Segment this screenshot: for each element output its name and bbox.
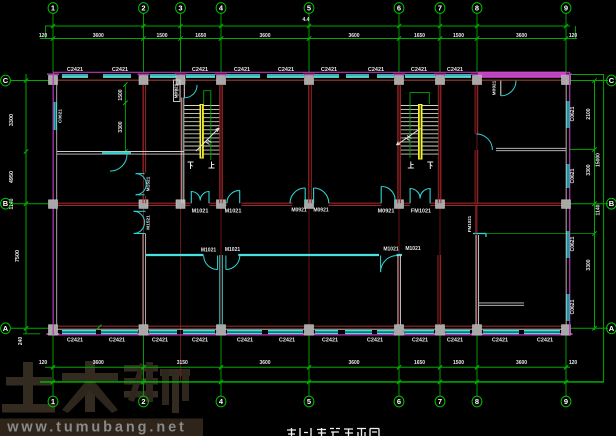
svg-text:9: 9	[564, 4, 568, 13]
svg-text:7: 7	[438, 397, 442, 406]
svg-text:1: 1	[51, 4, 55, 13]
svg-text:C2421: C2421	[321, 67, 337, 73]
svg-text:C2421: C2421	[278, 67, 294, 73]
svg-text:FM1021: FM1021	[411, 209, 431, 215]
svg-text:C0621: C0621	[570, 299, 576, 314]
svg-text:3300: 3300	[9, 114, 15, 126]
svg-text:2: 2	[141, 4, 145, 13]
svg-text:M0921: M0921	[174, 83, 180, 98]
svg-text:C2421: C2421	[234, 67, 250, 73]
svg-text:C2421: C2421	[492, 338, 508, 344]
svg-text:M0921: M0921	[492, 80, 498, 95]
svg-text:A: A	[609, 324, 615, 333]
svg-text:C2421: C2421	[322, 338, 338, 344]
svg-text:120: 120	[569, 360, 578, 366]
svg-text:www.tumubang.net: www.tumubang.net	[6, 420, 187, 436]
svg-text:6: 6	[397, 4, 401, 13]
svg-text:C: C	[609, 76, 615, 85]
svg-text:1650: 1650	[195, 33, 206, 39]
svg-text:3600: 3600	[348, 33, 359, 39]
svg-text:B: B	[609, 199, 615, 208]
svg-text:M1521: M1521	[146, 215, 152, 230]
svg-text:C2421: C2421	[447, 67, 463, 73]
svg-text:C2421: C2421	[67, 338, 83, 344]
svg-text:C2421: C2421	[109, 338, 125, 344]
svg-text:C2421: C2421	[112, 67, 128, 73]
svg-text:15000: 15000	[596, 153, 602, 167]
svg-text:C2421: C2421	[367, 338, 383, 344]
svg-text:1: 1	[51, 397, 55, 406]
svg-text:3150: 3150	[177, 360, 188, 366]
svg-text:C2421: C2421	[447, 338, 463, 344]
svg-text:1500: 1500	[118, 89, 124, 100]
svg-text:C2421: C2421	[192, 67, 208, 73]
svg-text:2: 2	[141, 397, 145, 406]
svg-text:M0921: M0921	[313, 208, 329, 214]
svg-text:4.4: 4.4	[303, 17, 310, 23]
svg-text:3600: 3600	[516, 33, 527, 39]
svg-text:9: 9	[564, 397, 568, 406]
svg-text:M1021: M1021	[201, 248, 217, 254]
svg-text:M0921: M0921	[291, 208, 307, 214]
svg-text:3300: 3300	[118, 121, 124, 132]
svg-text:C2421: C2421	[152, 338, 168, 344]
svg-text:3300: 3300	[586, 259, 592, 270]
svg-text:FM1021: FM1021	[467, 215, 472, 232]
svg-text:3600: 3600	[259, 360, 270, 366]
svg-text:C: C	[3, 76, 9, 85]
svg-text:8: 8	[475, 397, 479, 406]
svg-text:1500: 1500	[156, 33, 167, 39]
svg-text:2100: 2100	[586, 108, 592, 119]
svg-text:A: A	[3, 324, 9, 333]
svg-text:C0621: C0621	[570, 106, 576, 121]
svg-text:C2421: C2421	[279, 338, 295, 344]
svg-text:1650: 1650	[414, 360, 425, 366]
svg-text:6: 6	[397, 397, 401, 406]
svg-text:5: 5	[307, 397, 311, 406]
svg-text:3600: 3600	[348, 360, 359, 366]
svg-text:M1021: M1021	[225, 247, 241, 253]
svg-text:1500: 1500	[453, 360, 464, 366]
svg-text:120: 120	[39, 360, 48, 366]
svg-text:120: 120	[39, 33, 48, 39]
svg-text:M1021: M1021	[225, 209, 242, 215]
svg-text:B: B	[3, 199, 9, 208]
svg-text:3: 3	[178, 4, 182, 13]
svg-text:C2421: C2421	[412, 338, 428, 344]
svg-text:C2421: C2421	[192, 338, 208, 344]
svg-text:3600: 3600	[93, 360, 104, 366]
svg-text:C2421: C2421	[237, 338, 253, 344]
svg-text:3300: 3300	[586, 164, 592, 175]
svg-text:3600: 3600	[259, 33, 270, 39]
svg-text:120: 120	[569, 33, 578, 39]
svg-text:M1021: M1021	[192, 209, 209, 215]
svg-text:5: 5	[307, 4, 311, 13]
svg-text:8: 8	[475, 4, 479, 13]
svg-text:7500: 7500	[15, 250, 21, 262]
svg-text:C2421: C2421	[537, 338, 553, 344]
svg-text:M1021: M1021	[405, 246, 421, 252]
svg-text:1650: 1650	[414, 33, 425, 39]
svg-text:C2421: C2421	[368, 67, 384, 73]
svg-text:C0621: C0621	[570, 168, 576, 183]
svg-text:C2421: C2421	[67, 67, 83, 73]
svg-text:M1021: M1021	[383, 247, 399, 253]
svg-text:M0921: M0921	[378, 209, 395, 215]
svg-text:C2421: C2421	[411, 67, 427, 73]
svg-text:1140: 1140	[596, 204, 602, 215]
svg-text:1500: 1500	[453, 33, 464, 39]
svg-text:4950: 4950	[9, 171, 15, 183]
svg-text:C0621: C0621	[58, 109, 64, 123]
svg-text:C0621: C0621	[570, 236, 576, 251]
svg-text:M1521: M1521	[146, 176, 152, 191]
svg-text:7: 7	[438, 4, 442, 13]
svg-text:3600: 3600	[516, 360, 527, 366]
svg-text:240: 240	[18, 337, 24, 346]
svg-text:3600: 3600	[93, 33, 104, 39]
